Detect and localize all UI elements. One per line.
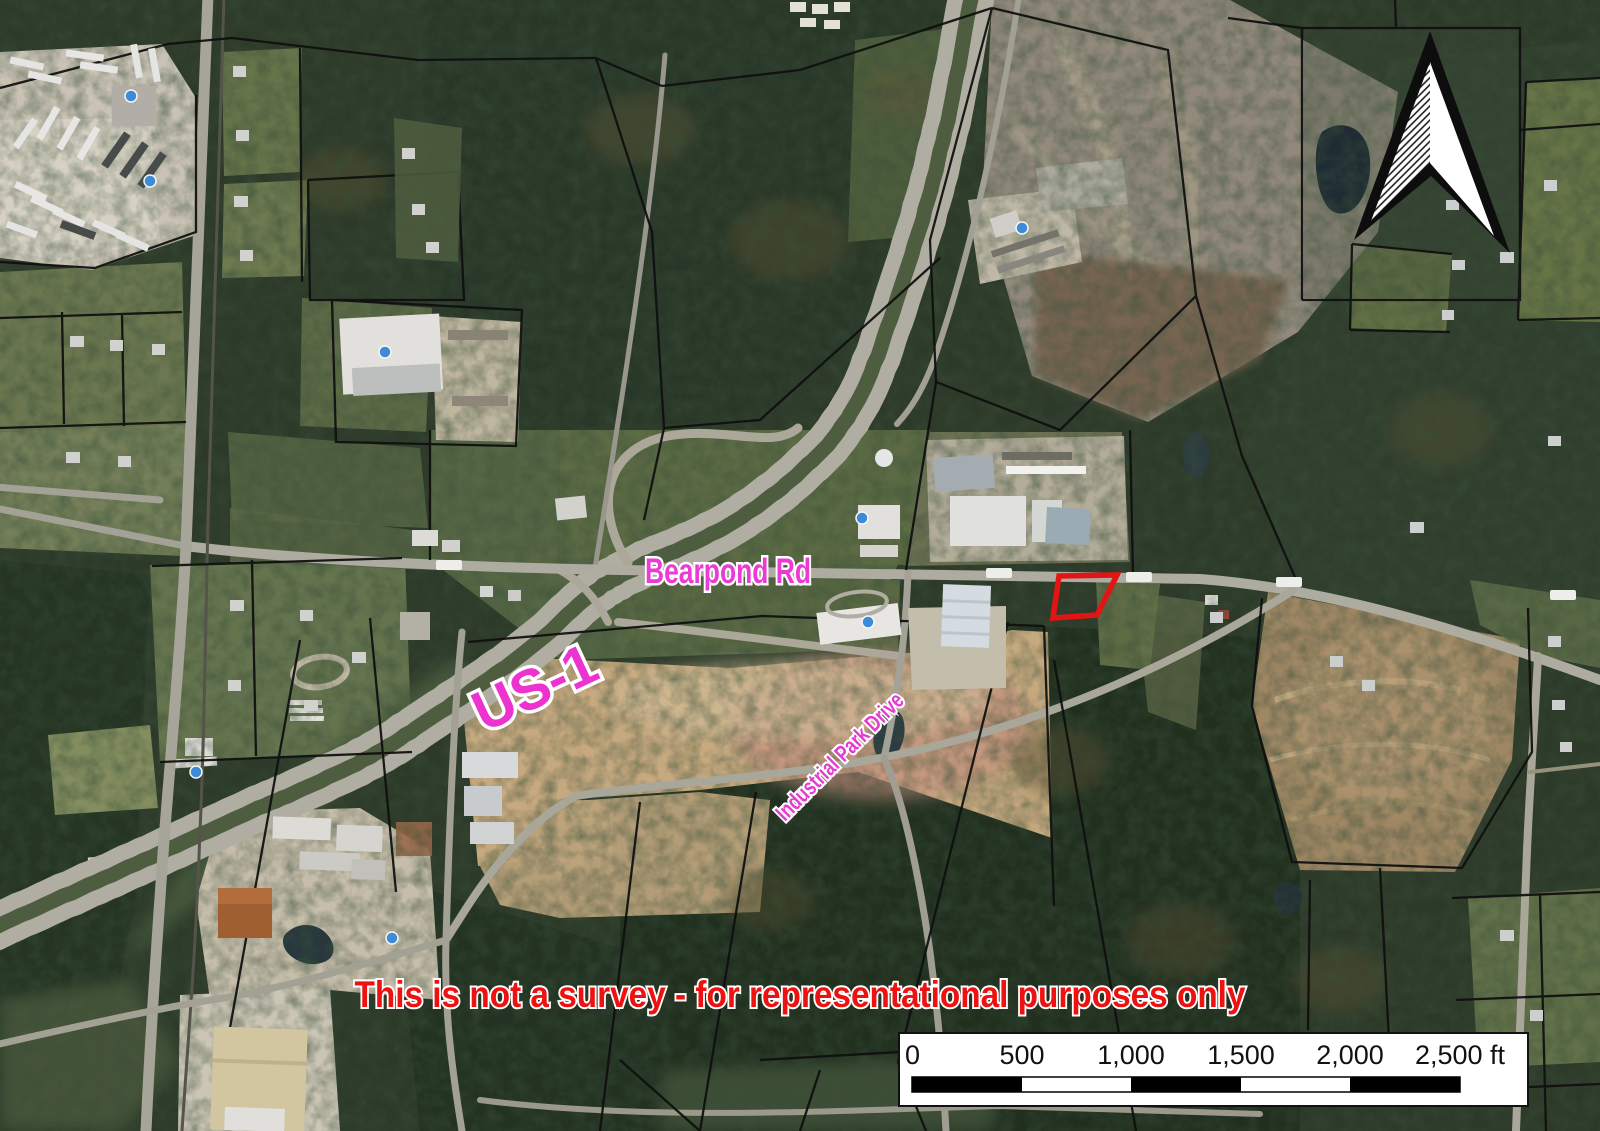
svg-text:2,500 ft: 2,500 ft [1415,1040,1506,1070]
svg-text:500: 500 [999,1040,1044,1070]
svg-text:Bearpond Rd: Bearpond Rd [645,552,811,591]
svg-text:0: 0 [905,1040,920,1070]
svg-text:2,000: 2,000 [1316,1040,1384,1070]
svg-text:1,500: 1,500 [1207,1040,1275,1070]
svg-text:1,000: 1,000 [1097,1040,1165,1070]
svg-text:This is not a survey - for rep: This is not a survey - for representatio… [355,974,1246,1015]
